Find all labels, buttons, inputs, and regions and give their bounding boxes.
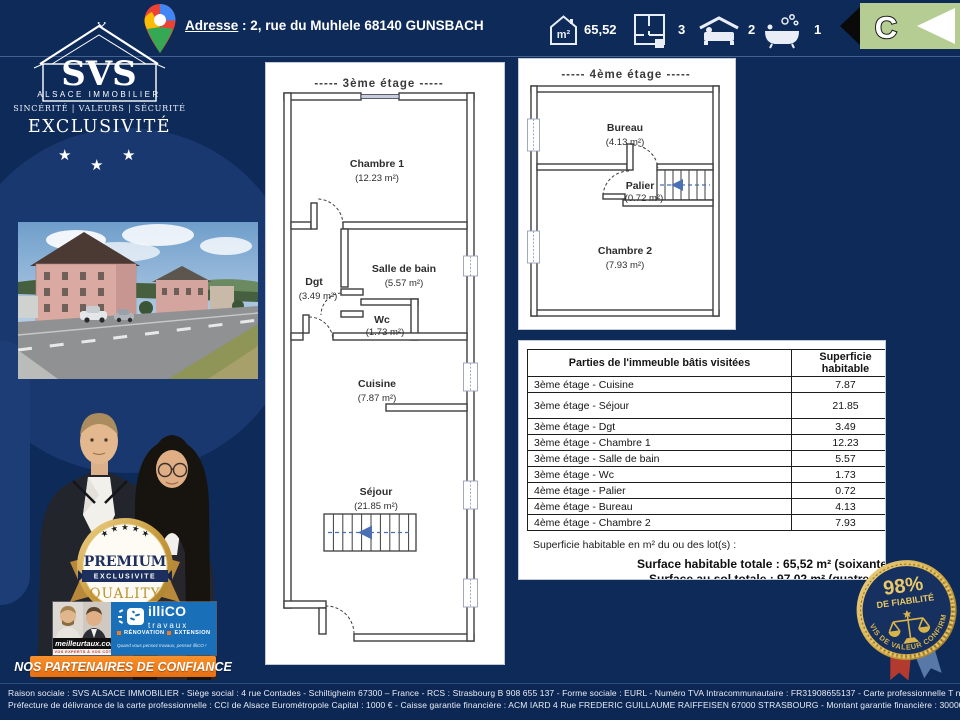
bathroom-icon (760, 12, 806, 50)
room-area: (7.93 m²) (606, 260, 645, 271)
table-cell-value: 1.73 (792, 467, 887, 483)
logo-brand-text: SVS (61, 54, 137, 94)
footer-legal-line1: Raison sociale : SVS ALSACE IMMOBILIER -… (8, 688, 956, 698)
table-cell-label: 3ème étage - Chambre 1 (528, 435, 792, 451)
m2-label: m² (557, 29, 571, 41)
table-header-parties: Parties de l'immeuble bâtis visitées (528, 350, 792, 377)
quality-label: QUALITY (90, 586, 161, 602)
illico-sparks-icon (119, 608, 125, 624)
illico-logo-icon (127, 608, 144, 625)
meilleurtaux-logo: meilleurtaux.com (53, 638, 111, 649)
room-area: (21.85 m²) (354, 501, 398, 512)
floorplan-icon (633, 13, 669, 49)
exclusivite-label: EXCLUSIVITE (94, 574, 156, 581)
illico-services: RÉNOVATION EXTENSION (117, 630, 210, 636)
table-cell-value: 5.57 (792, 451, 887, 467)
illico-tagline: Quand vous pensez travaux, pensez illiCO… (117, 643, 206, 648)
table-cell-label: 4ème étage - Chambre 2 (528, 515, 792, 531)
footer-divider (0, 683, 960, 684)
floorplan-4th-floor-panel: ----- 4ème étage ----- (518, 58, 736, 330)
meilleurtaux-subtitle: VOS EXPERTS À VOS CÔTÉS (53, 649, 111, 655)
table-row: 4ème étage - Chambre 27.93 (528, 515, 887, 531)
surface-value: 65,52 (584, 22, 617, 37)
staircase (657, 170, 713, 200)
surface-note: Superficie habitable en m² du ou des lot… (533, 539, 736, 551)
room-label: Chambre 2 (598, 245, 652, 257)
address-line: Adresse : 2, rue du Muhlele 68140 GUNSBA… (185, 18, 484, 33)
star-icon: ★ (58, 146, 71, 164)
surface-table: Parties de l'immeuble bâtis visitées Sup… (527, 349, 886, 531)
partners-trust-banner: NOS PARTENAIRES DE CONFIANCE (30, 656, 216, 677)
logo-brand-subtext: ALSACE IMMOBILIER (37, 90, 160, 99)
table-row: 3ème étage - Séjour21.85 (528, 393, 887, 419)
staircase (324, 514, 416, 551)
table-cell-label: 3ème étage - Séjour (528, 393, 792, 419)
building-photo (18, 222, 258, 379)
bathrooms-value: 1 (814, 22, 821, 37)
surface-table-panel: Parties de l'immeuble bâtis visitées Sup… (518, 340, 886, 580)
footer-legal-line2: Préfecture de délivrance de la carte pro… (8, 700, 956, 710)
table-row: 3ème étage - Cuisine7.87 (528, 377, 887, 393)
logo-exclusivity: EXCLUSIVITÉ (12, 117, 187, 137)
bullet-square-icon (167, 631, 171, 635)
table-row: 4ème étage - Bureau4.13 (528, 499, 887, 515)
table-cell-label: 4ème étage - Palier (528, 483, 792, 499)
room-label: Wc (374, 314, 390, 326)
room-area: (0.72 m²) (625, 193, 664, 204)
table-row: 3ème étage - Chambre 112.23 (528, 435, 887, 451)
bedrooms-value: 2 (748, 22, 755, 37)
table-cell-label: 3ème étage - Wc (528, 467, 792, 483)
table-cell-value: 7.87 (792, 377, 887, 393)
partners-banner: meilleurtaux.com VOS EXPERTS À VOS CÔTÉS… (53, 602, 216, 655)
table-cell-value: 21.85 (792, 393, 887, 419)
reliability-badge: 98% DE FIABILITÉ AVIS DE VALEUR CONFIRMÉ (848, 551, 960, 688)
room-label: Palier (626, 180, 655, 192)
meilleurtaux-photos: meilleurtaux.com VOS EXPERTS À VOS CÔTÉS (53, 602, 111, 655)
bullet-square-icon (117, 631, 121, 635)
rooms-value: 3 (678, 22, 685, 37)
room-area: (3.49 m²) (299, 291, 338, 302)
table-cell-value: 0.72 (792, 483, 887, 499)
table-cell-label: 3ème étage - Dgt (528, 419, 792, 435)
star-icon: ★ (122, 146, 135, 164)
address-separator: : (238, 18, 250, 33)
flyer-page: SVS ALSACE IMMOBILIER SINCÉRITÉ | VALEUR… (0, 0, 960, 720)
bedroom-icon (698, 16, 740, 47)
plan4-title: ----- 4ème étage ----- (561, 69, 690, 81)
address-label: Adresse (185, 18, 238, 33)
table-cell-value: 3.49 (792, 419, 887, 435)
room-area: (1.73 m²) (366, 327, 405, 338)
table-cell-label: 3ème étage - Salle de bain (528, 451, 792, 467)
illico-name: illiCO (148, 603, 186, 619)
table-header-row: Parties de l'immeuble bâtis visitées Sup… (528, 350, 887, 377)
table-cell-value: 12.23 (792, 435, 887, 451)
room-area: (4.13 m²) (606, 137, 645, 148)
room-label: Chambre 1 (350, 158, 404, 170)
room-label: Salle de bain (372, 263, 436, 275)
floorplan-3rd-floor-panel: ----- 3ème étage ----- (265, 62, 505, 665)
address-value: 2, rue du Muhlele 68140 GUNSBACH (250, 18, 483, 33)
room-area: (12.23 m²) (355, 173, 399, 184)
illico-travaux-block: illiCO travaux RÉNOVATION EXTENSION Quan… (111, 602, 216, 655)
logo-tagline: SINCÉRITÉ | VALEURS | SÉCURITÉ (12, 104, 187, 113)
table-cell-label: 3ème étage - Cuisine (528, 377, 792, 393)
table-row: 3ème étage - Wc1.73 (528, 467, 887, 483)
illico-renovation: RÉNOVATION (124, 630, 164, 636)
energy-class-pennant: C (838, 0, 960, 52)
room-label: Bureau (607, 122, 643, 134)
surface-table-body: 3ème étage - Cuisine7.873ème étage - Séj… (528, 377, 887, 531)
table-row: 3ème étage - Salle de bain5.57 (528, 451, 887, 467)
plan3-title: ----- 3ème étage ----- (314, 78, 443, 90)
table-row: 4ème étage - Palier0.72 (528, 483, 887, 499)
room-label: Séjour (360, 486, 393, 498)
map-pin-icon (142, 3, 178, 55)
room-label: Dgt (305, 276, 323, 288)
table-cell-value: 4.13 (792, 499, 887, 515)
surface-m2-icon: m² (548, 14, 579, 47)
illico-extension: EXTENSION (174, 630, 210, 636)
table-header-superficie: Superficie habitable (792, 350, 887, 377)
floorplan-4th-floor: ----- 4ème étage ----- (519, 59, 735, 329)
table-row: 3ème étage - Dgt3.49 (528, 419, 887, 435)
premium-label: PREMIUM (84, 554, 167, 570)
star-icon: ★ (90, 156, 103, 174)
room-label: Cuisine (358, 378, 396, 390)
energy-class-letter: C (875, 10, 897, 45)
table-cell-value: 7.93 (792, 515, 887, 531)
floorplan-3rd-floor: ----- 3ème étage ----- (266, 63, 504, 664)
illico-subname: travaux (148, 621, 188, 630)
table-cell-label: 4ème étage - Bureau (528, 499, 792, 515)
room-area: (5.57 m²) (385, 278, 424, 289)
room-area: (7.87 m²) (358, 393, 397, 404)
logo-stars: ★ ★ ★ (12, 144, 187, 178)
